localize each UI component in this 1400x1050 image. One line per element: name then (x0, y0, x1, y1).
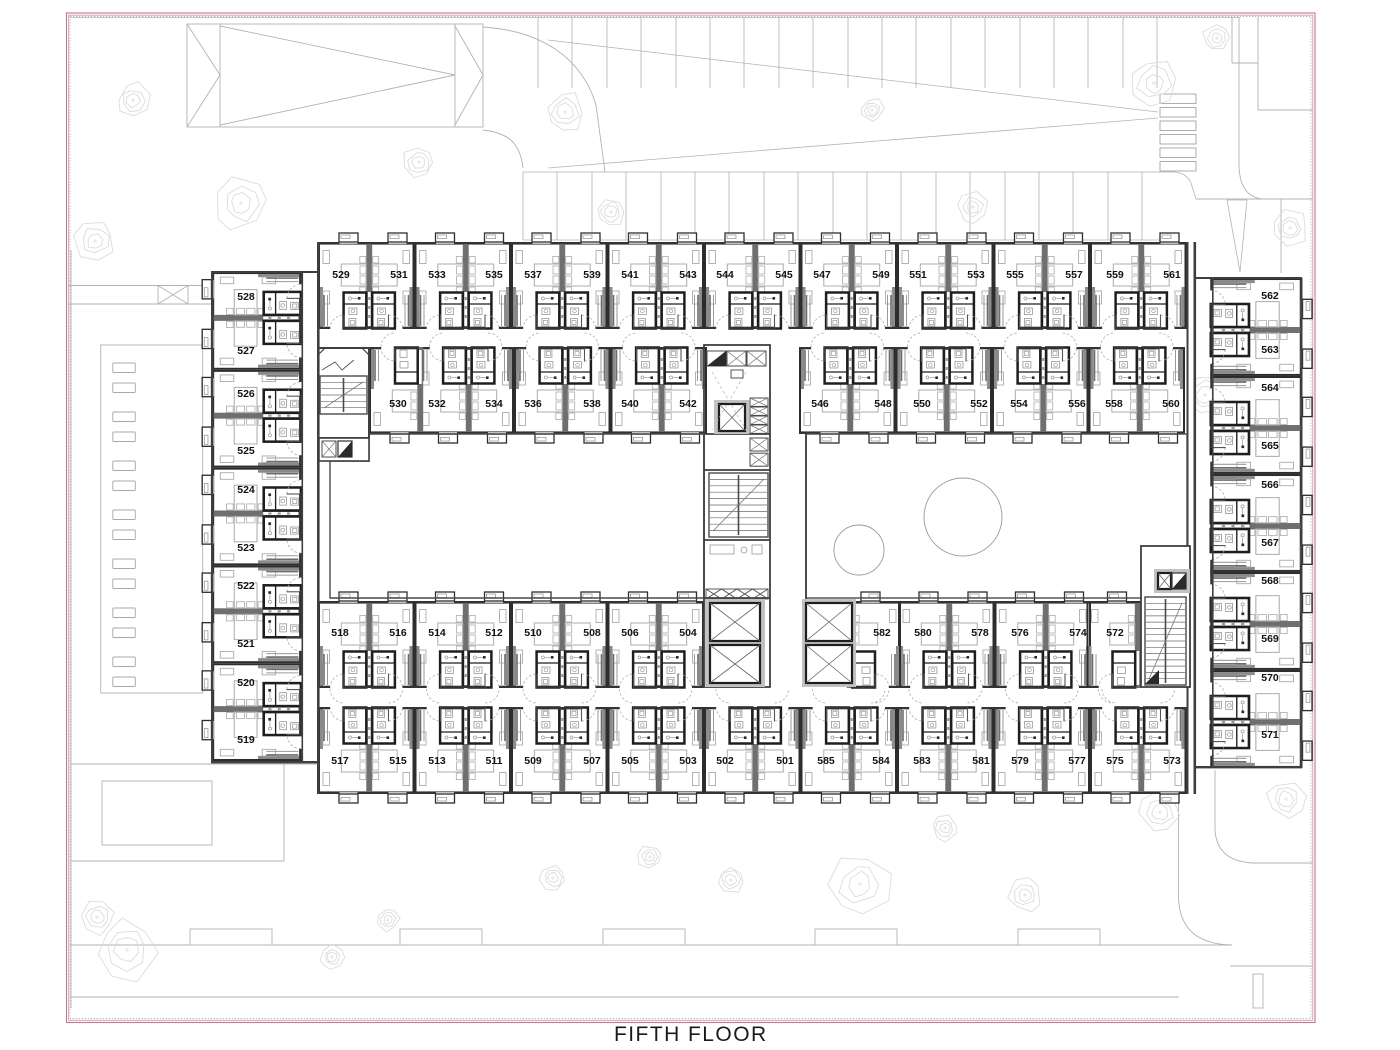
svg-text:574: 574 (1069, 627, 1087, 639)
svg-text:581: 581 (972, 755, 990, 767)
svg-text:501: 501 (776, 755, 794, 767)
svg-text:561: 561 (1163, 269, 1181, 281)
svg-text:579: 579 (1011, 755, 1029, 767)
svg-text:509: 509 (524, 755, 542, 767)
svg-text:528: 528 (237, 291, 255, 303)
svg-text:512: 512 (485, 627, 503, 639)
svg-text:542: 542 (679, 398, 697, 410)
svg-text:FIFTH FLOOR: FIFTH FLOOR (614, 1023, 768, 1046)
svg-text:534: 534 (485, 398, 503, 410)
svg-text:527: 527 (237, 345, 255, 357)
svg-text:538: 538 (583, 398, 601, 410)
svg-text:503: 503 (679, 755, 697, 767)
svg-text:511: 511 (486, 755, 503, 767)
svg-text:537: 537 (524, 269, 542, 281)
svg-text:507: 507 (583, 755, 601, 767)
svg-text:546: 546 (811, 398, 829, 410)
svg-text:502: 502 (716, 755, 734, 767)
svg-text:523: 523 (237, 542, 255, 554)
svg-text:554: 554 (1010, 398, 1028, 410)
svg-text:524: 524 (237, 484, 255, 496)
svg-text:539: 539 (583, 269, 601, 281)
svg-text:547: 547 (813, 269, 831, 281)
svg-text:562: 562 (1261, 290, 1279, 302)
svg-text:529: 529 (332, 269, 350, 281)
svg-text:517: 517 (331, 755, 349, 767)
svg-text:569: 569 (1261, 633, 1279, 645)
svg-text:565: 565 (1261, 440, 1279, 452)
svg-text:526: 526 (237, 388, 255, 400)
svg-text:550: 550 (913, 398, 931, 410)
svg-text:535: 535 (485, 269, 503, 281)
svg-text:577: 577 (1068, 755, 1086, 767)
svg-text:544: 544 (716, 269, 734, 281)
svg-text:575: 575 (1106, 755, 1124, 767)
svg-text:549: 549 (872, 269, 890, 281)
svg-text:571: 571 (1261, 729, 1279, 741)
svg-text:566: 566 (1261, 479, 1279, 491)
svg-text:513: 513 (428, 755, 446, 767)
svg-text:545: 545 (775, 269, 793, 281)
svg-text:570: 570 (1261, 672, 1279, 684)
svg-text:505: 505 (621, 755, 639, 767)
svg-text:520: 520 (237, 677, 255, 689)
svg-text:582: 582 (873, 627, 891, 639)
svg-text:580: 580 (914, 627, 932, 639)
svg-text:568: 568 (1261, 575, 1279, 587)
svg-text:578: 578 (971, 627, 989, 639)
svg-text:548: 548 (874, 398, 892, 410)
svg-text:559: 559 (1106, 269, 1124, 281)
svg-text:531: 531 (390, 269, 408, 281)
svg-text:551: 551 (909, 269, 927, 281)
svg-text:556: 556 (1068, 398, 1086, 410)
svg-text:516: 516 (389, 627, 407, 639)
svg-text:560: 560 (1162, 398, 1180, 410)
svg-text:522: 522 (237, 580, 255, 592)
svg-text:515: 515 (389, 755, 407, 767)
svg-text:508: 508 (583, 627, 601, 639)
svg-text:540: 540 (621, 398, 639, 410)
svg-text:521: 521 (237, 638, 255, 650)
svg-text:555: 555 (1006, 269, 1024, 281)
svg-text:572: 572 (1106, 627, 1124, 639)
svg-text:552: 552 (970, 398, 988, 410)
svg-text:558: 558 (1105, 398, 1123, 410)
svg-text:533: 533 (428, 269, 446, 281)
svg-text:504: 504 (679, 627, 697, 639)
svg-text:576: 576 (1011, 627, 1029, 639)
svg-text:525: 525 (237, 445, 255, 457)
svg-text:530: 530 (389, 398, 407, 410)
svg-text:557: 557 (1065, 269, 1083, 281)
svg-text:583: 583 (913, 755, 931, 767)
svg-text:518: 518 (331, 627, 349, 639)
svg-text:573: 573 (1163, 755, 1181, 767)
svg-text:536: 536 (524, 398, 542, 410)
svg-text:553: 553 (967, 269, 985, 281)
svg-text:543: 543 (679, 269, 697, 281)
svg-text:564: 564 (1261, 382, 1279, 394)
svg-text:510: 510 (524, 627, 542, 639)
svg-text:514: 514 (428, 627, 446, 639)
svg-text:563: 563 (1261, 344, 1279, 356)
svg-text:541: 541 (621, 269, 639, 281)
svg-text:506: 506 (621, 627, 639, 639)
svg-text:532: 532 (428, 398, 446, 410)
svg-text:567: 567 (1261, 537, 1279, 549)
svg-text:585: 585 (817, 755, 835, 767)
svg-text:519: 519 (237, 734, 255, 746)
svg-text:584: 584 (872, 755, 890, 767)
